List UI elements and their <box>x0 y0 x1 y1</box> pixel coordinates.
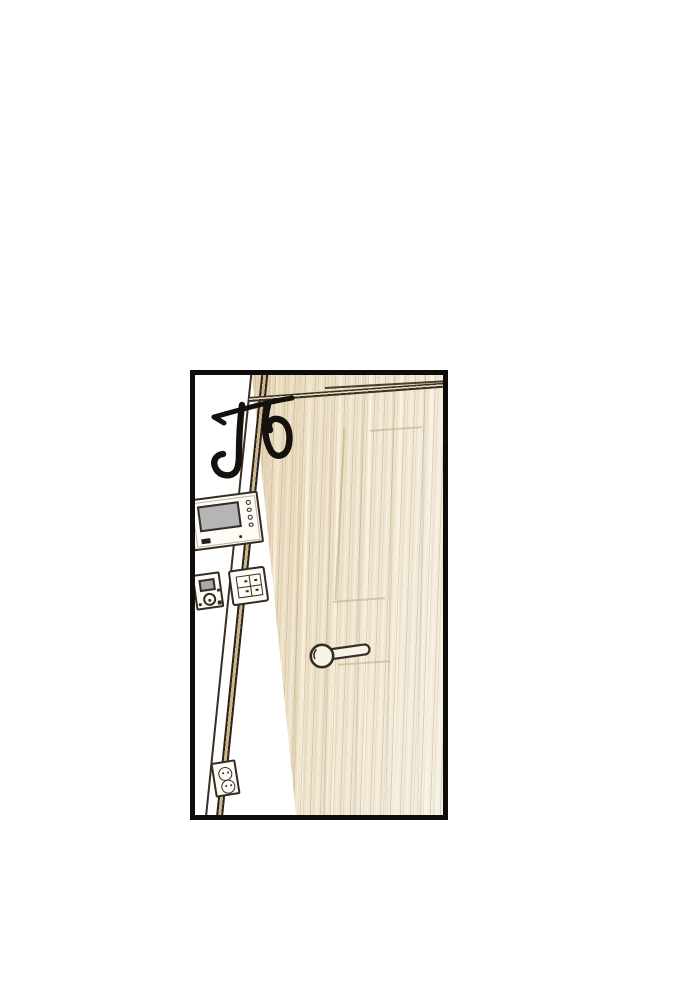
keypad-dial-dot <box>208 598 212 602</box>
switch-rocker-mark <box>244 580 248 582</box>
intercom-button <box>246 507 251 512</box>
control-keypad <box>192 571 225 611</box>
intercom-led <box>239 535 242 538</box>
comic-panel: ปัง <box>190 370 448 820</box>
intercom-button <box>247 514 252 519</box>
sfx-bang-lettering <box>201 391 301 487</box>
power-outlet <box>210 759 240 797</box>
keypad-dial <box>202 592 217 607</box>
video-intercom <box>190 491 264 552</box>
keypad-dot <box>198 603 201 606</box>
keypad-dot <box>217 588 220 591</box>
switch-rocker-grid <box>235 573 263 598</box>
switch-rocker-mark <box>255 589 259 591</box>
switch-rocker-mark <box>246 590 250 592</box>
outlet-socket <box>220 778 236 794</box>
intercom-screen <box>197 501 242 532</box>
keypad-screen <box>198 578 216 592</box>
socket-pin-hole <box>227 771 230 774</box>
socket-pin-hole <box>230 784 233 787</box>
door-handle-icon <box>305 635 380 677</box>
socket-pin-hole <box>225 785 228 788</box>
light-switch-panel <box>228 566 270 607</box>
socket-pin-hole <box>222 772 225 775</box>
intercom-button <box>245 500 250 505</box>
comic-page: ปัง <box>0 0 690 1000</box>
keypad-dot <box>217 600 221 604</box>
intercom-button <box>248 522 253 527</box>
switch-rocker-mark <box>254 579 258 581</box>
